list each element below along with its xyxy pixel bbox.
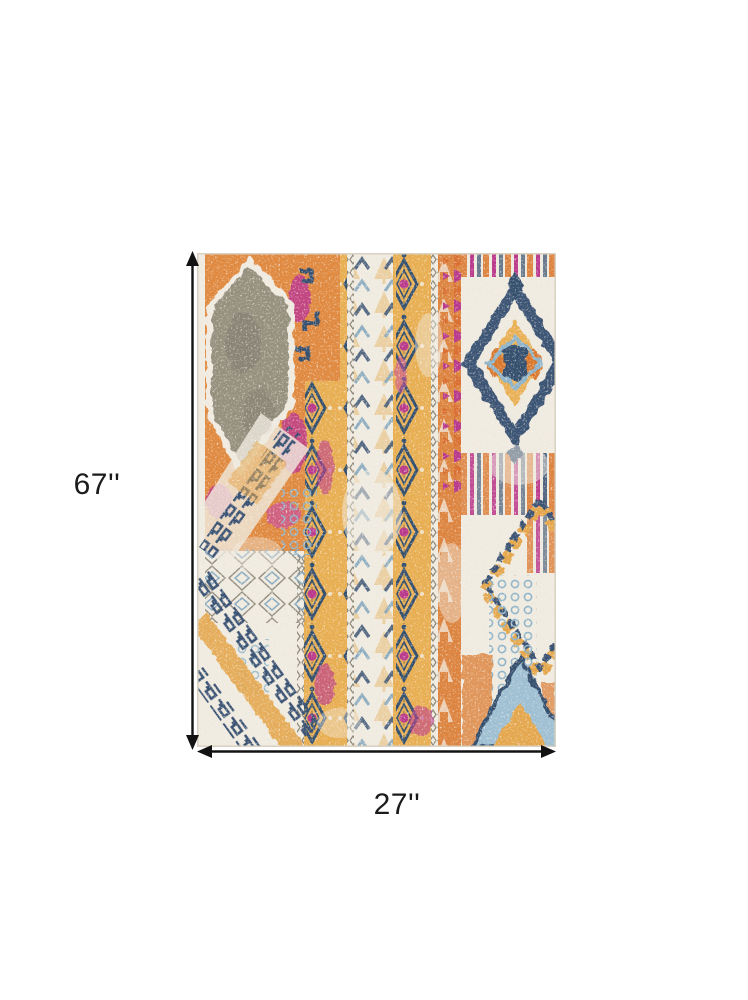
- rug-image: [197, 253, 556, 747]
- distress-overlay: [197, 253, 556, 747]
- width-dimension-label: 27'': [352, 790, 442, 820]
- rug-pattern: [197, 253, 556, 747]
- product-dimension-diagram: 67'' 27'': [0, 0, 748, 1000]
- height-dimension-label: 67'': [52, 470, 142, 500]
